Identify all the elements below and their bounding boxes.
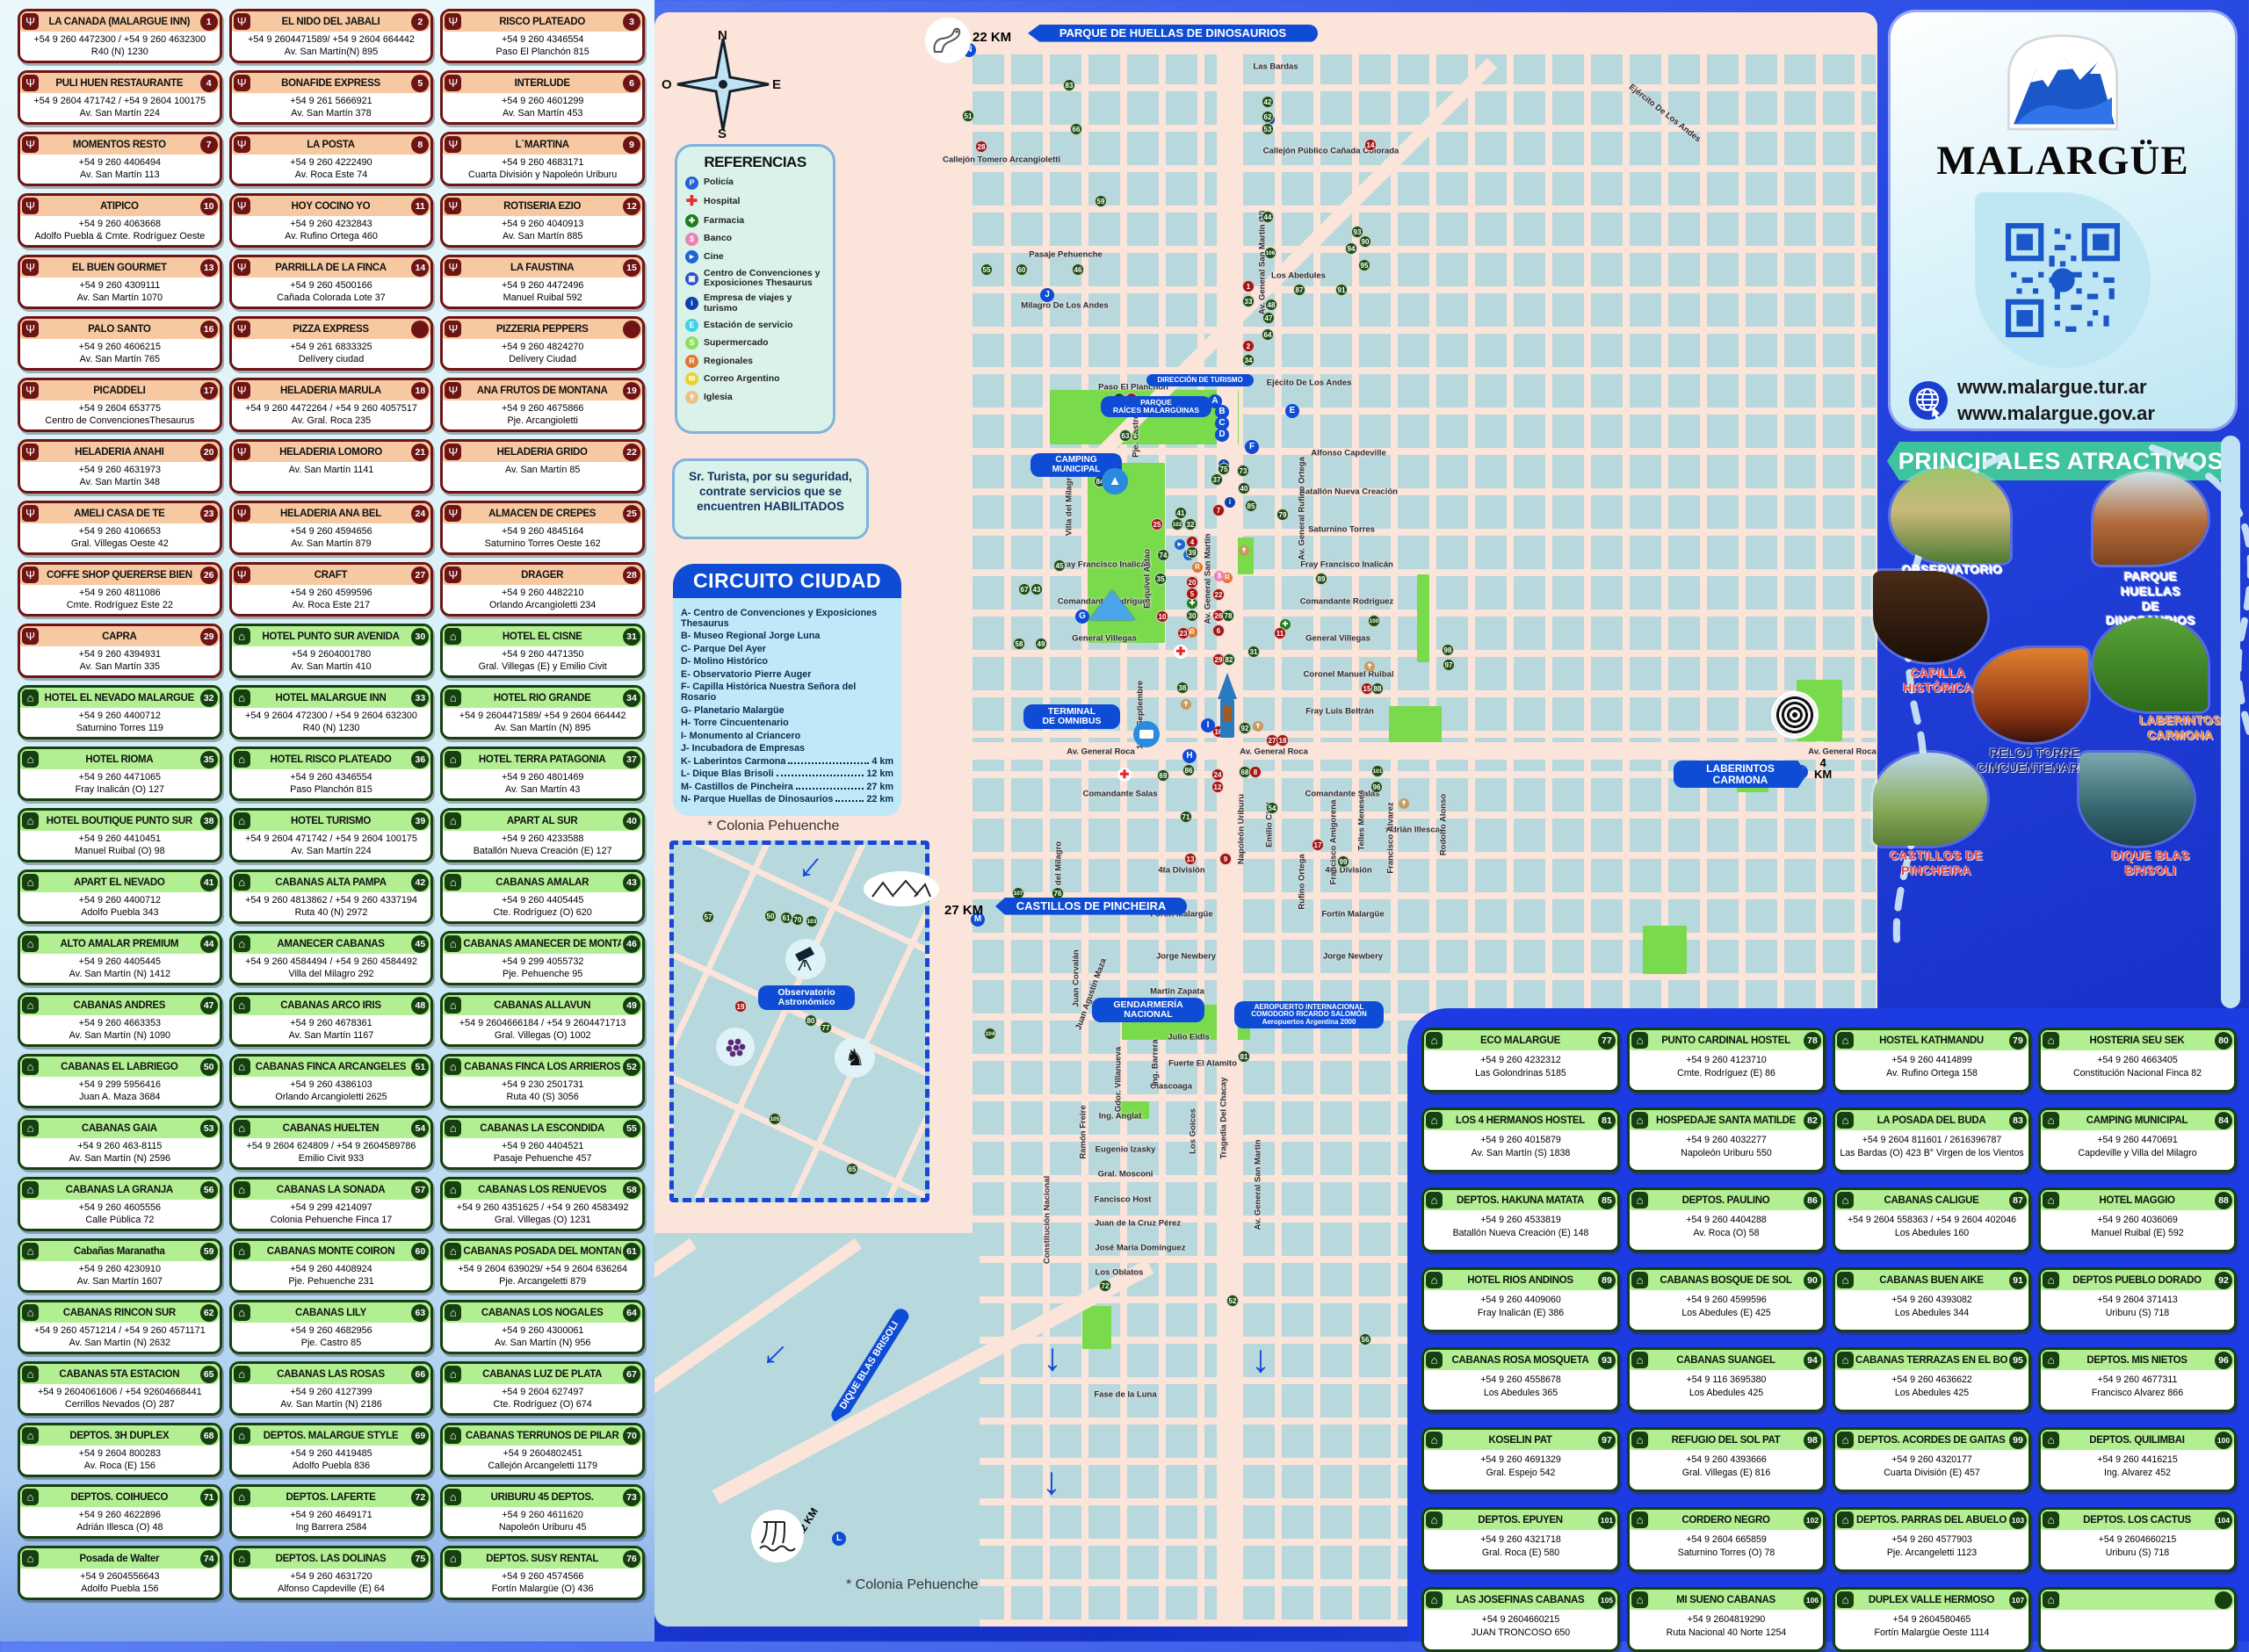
website-tur[interactable]: www.malargue.tur.ar [1957,374,2155,400]
business-card-78: ⌂PUNTO CARDINAL HOSTEL78+54 9 260 412371… [1627,1028,1826,1093]
business-name: DEPTOS. PAULINO [1650,1195,1802,1206]
business-phone: +54 9 260 4400712 [20,894,220,906]
business-name: CABAÑAS LOS RENUEVOS [463,1185,621,1195]
business-address: Pje. Pehuenche 95 [443,968,642,980]
bed-icon: ⌂ [1837,1272,1854,1288]
business-phone: +54 9 260 4410451 [20,833,220,845]
business-address: Los Abedules 365 [1424,1387,1617,1400]
business-card-27: ΨCRAFT27+54 9 260 4599596Av. Roca Este 2… [229,562,434,617]
business-phone: +54 9 2604 811601 / 2616396787 [1835,1134,2028,1147]
fork-knife-icon: Ψ [22,321,39,337]
business-card-99: ⌂DEPTOS. ACORDES DE GAITAS99+54 9 260 43… [1833,1427,2031,1492]
gendarmeria-badge: GENDARMERÍA NACIONAL [1092,998,1204,1022]
business-number-badge: 82 [1804,1112,1821,1129]
business-card-86: ⌂DEPTOS. PAULINO86+54 9 260 4404288Av. R… [1627,1187,1826,1252]
business-name: DEPTOS. ACORDES DE GAITAS [1855,1435,2007,1446]
street-label: Comandante Rodríguez [1300,597,1394,607]
business-address: R40 (N) 1230 [232,722,431,734]
map-marker-8: 8 [1249,766,1262,778]
business-number-badge: 27 [411,566,429,584]
fork-knife-icon: Ψ [234,75,250,91]
business-address: Capdeville y Villa del Milagro [2041,1147,2234,1160]
park-area [1417,574,1429,662]
references-legend: REFERENCIAS PPolicía✚Hospital✚Farmacia$B… [675,144,835,434]
bed-icon: ⌂ [22,997,39,1014]
business-number-badge: 5 [411,75,429,92]
business-phone: +54 9 260 4594656 [232,525,431,537]
business-number-badge: 86 [1804,1192,1821,1209]
map-marker-62: 62 [1262,111,1274,123]
business-number-badge: 6 [623,75,640,92]
map-marker-35: 35 [1154,573,1167,585]
map-marker-52: 52 [1226,1295,1239,1307]
business-address: Cuarta División y Napoleón Uriburu [443,169,642,181]
business-phone: +54 9 2604802451 [443,1447,642,1460]
legend-icon: $ [685,233,698,246]
bed-icon: ⌂ [1837,1352,1854,1368]
bed-icon: ⌂ [1837,1192,1854,1208]
map-marker-64: 64 [1262,328,1274,341]
bed-icon: ⌂ [234,1243,250,1259]
map-marker-60: 60 [1016,263,1028,276]
business-address: Orlando Arcangioletti 2625 [232,1091,431,1103]
map-marker-40: 40 [1238,482,1250,494]
business-name: LOS 4 HERMANOS HOSTEL [1444,1115,1596,1126]
map-marker-106: 106 [1264,247,1276,259]
bottom-card-grid: ⌂ECO MALARGÜE77+54 9 260 4232312Las Golo… [1421,1028,2237,1652]
business-address: Napoleón Uriburu 45 [443,1521,642,1533]
street-label: Constitución Nacional [1043,1176,1052,1264]
business-phone: +54 9 260 4622896 [20,1509,220,1521]
business-card-15: ΨLA FAUSTINA15+54 9 260 4472496Manuel Ru… [440,255,645,309]
attraction-photo [2079,753,2194,846]
business-address: Colonia Pehuenche Finca 17 [232,1214,431,1226]
business-name: CABAÑAS BUEN AIKE [1855,1275,2007,1286]
poi-icon: ✝ [1253,721,1263,732]
business-phone: +54 9 260 4682956 [232,1324,431,1337]
street-label: Av. General Roca [1240,747,1308,757]
fork-knife-icon: Ψ [22,259,39,276]
business-number-badge: 95 [2009,1352,2027,1369]
business-address: Av. San Martín 1070 [20,292,220,304]
compass-star [670,32,776,137]
legend-icon: ✝ [685,391,698,404]
business-phone: +54 9 260 4409060 [1424,1294,1617,1307]
business-address: Batallón Nueva Creación (E) 148 [1424,1227,1617,1240]
business-number-badge: 92 [2215,1272,2232,1289]
bed-icon: ⌂ [22,1120,39,1136]
bed-icon: ⌂ [2043,1352,2059,1368]
business-phone: +54 9 260 4683171 [443,156,642,169]
business-name: DEPTOS. SUSY RENTAL [463,1554,621,1564]
business-card-94: ⌂CABAÑAS SUANGEL94+54 9 116 3695380Los A… [1627,1347,1826,1412]
business-name: CABAÑAS LA ESCONDIDA [463,1123,621,1134]
business-number-badge: 24 [411,505,429,523]
business-number-badge: 45 [411,935,429,953]
business-name: HELADERÍA LOMORO [252,447,410,458]
business-card-26: ΨCOFFE SHOP QUERERSE BIEN26+54 9 260 481… [18,562,222,617]
business-card-40: ⌂APART AL SUR40+54 9 260 4233588Batallón… [440,808,645,862]
street-label: Ramón Freire [1079,1105,1088,1158]
map-marker-19: 19 [734,1000,747,1013]
fork-knife-icon: Ψ [234,13,250,30]
business-phone: +54 9 2604 653775 [20,402,220,415]
business-card-98: ⌂REFUGIO DEL SOL PAT98+54 9 260 4393666G… [1627,1427,1826,1492]
business-number-badge [411,321,429,338]
business-name: PARRILLA DE LA FINCA [252,263,410,273]
mountain-logo [2001,28,2124,132]
hospital-icon: ✚ [1117,768,1132,782]
bed-icon: ⌂ [1426,1272,1443,1288]
business-number-badge: 48 [411,997,429,1014]
business-number-badge: 53 [200,1120,218,1137]
bed-icon: ⌂ [2043,1192,2059,1208]
business-name: Cabañas Maranatha [40,1246,199,1257]
business-address: Av. San Martín 453 [443,107,642,119]
business-card-33: ⌂HOTEL MALARGÜE INN33+54 9 2604 472300 /… [229,685,434,739]
business-number-badge: 41 [200,874,218,891]
map-marker-48: 48 [1265,299,1277,311]
business-card-11: ΨHOY COCINO YO11+54 9 260 4232843Av. Ruf… [229,193,434,248]
business-phone: +54 9 260 463-8115 [20,1140,220,1152]
bottom-lodging-panel: ⌂ECO MALARGÜE77+54 9 260 4232312Las Golo… [1407,1008,2249,1641]
poi-icon: ✝ [1364,661,1375,672]
bed-icon: ⌂ [445,874,461,891]
business-name: CAPRA [40,631,199,642]
business-address: Av. San Martín 335 [20,660,220,673]
business-name: URIBURU 45 DEPTOS. [463,1492,621,1503]
map-marker-83: 83 [1063,79,1075,91]
poi-letter-L: L [832,1532,846,1546]
business-name: REFUGIO DEL SOL PAT [1650,1435,1802,1446]
telescope-icon [785,939,826,979]
map-marker-24: 24 [1211,768,1224,781]
circuito-title: CIRCUITO CIUDAD [673,564,901,598]
bed-icon: ⌂ [234,751,250,768]
business-number-badge: 103 [2009,1511,2027,1529]
business-card-100: ⌂DEPTOS. QUILIMBAI100+54 9 260 4416215In… [2038,1427,2237,1492]
business-card-29: ΨCAPRA29+54 9 260 4394931Av. San Martín … [18,624,222,678]
business-phone: +54 9 260 4036069 [2041,1214,2234,1227]
map-marker-104: 104 [984,1028,996,1040]
legend-item: ▣Centro de Convenciones y Exposiciones T… [685,269,825,289]
business-phone: +54 9 2604 471742 / +54 9 2604 100175 [20,95,220,107]
bed-icon: ⌂ [1837,1591,1854,1608]
bed-icon: ⌂ [22,1243,39,1259]
attraction-photo [1873,571,1987,662]
map-marker-95: 95 [1358,259,1370,271]
business-address: Constitución Nacional Finca 82 [2041,1067,2234,1080]
business-number-badge: 34 [623,689,640,707]
bed-icon: ⌂ [1426,1192,1443,1208]
compass-s: S [718,126,727,141]
business-phone: +54 9 260 4404288 [1630,1214,1823,1227]
business-address: Fray Inalicán (O) 127 [20,783,220,796]
business-number-badge: 87 [2009,1192,2027,1209]
bed-icon: ⌂ [22,1181,39,1198]
business-number-badge: 11 [411,198,429,215]
business-number-badge: 3 [623,13,640,31]
street-label: Fortín Malargüe [1321,910,1384,920]
business-number-badge: 33 [411,689,429,707]
business-address: Av. San Martín 1607 [20,1275,220,1288]
map-marker-41: 41 [1175,507,1187,519]
business-card-104: ⌂DEPTOS. LOS CACTUS104+54 9 2604660215Ur… [2038,1507,2237,1572]
business-name: ATÍPICO [40,201,199,212]
attraction-label: RELOJ TORRE CINCUENTENARIO [1978,746,2093,776]
poi-letter-J: J [1040,288,1054,302]
business-card-8: ΨLA POSTA8+54 9 260 4222490Av. Roca Este… [229,132,434,186]
map-marker-92: 92 [1239,722,1251,734]
business-name: CABAÑAS TERRUÑOS DE PILAR [463,1431,621,1441]
bed-icon: ⌂ [234,628,250,645]
map-marker-55: 55 [980,263,993,276]
business-name: LA POSTA [252,140,410,150]
business-phone: +54 9 260 4320177 [1835,1454,2028,1467]
globe-icon [1908,380,1949,421]
business-address: Gral. Villegas (E) y Emilio Civit [443,660,642,673]
business-name: INTERLUDE [463,78,621,89]
business-card-16: ΨPALO SANTO16+54 9 260 4606215Av. San Ma… [18,316,222,371]
business-phone: +54 9 260 4571214 / +54 9 260 4571171 [20,1324,220,1337]
left-directory-card-grid: ΨLA CAÑADA (MALARGÜE INN)1+54 9 260 4472… [18,9,645,1600]
compass-n: N [718,28,727,43]
map-marker-88: 88 [1371,682,1384,695]
business-name: CABAÑAS ARCO IRIS [252,1000,410,1011]
business-card-36: ⌂HOTEL RISCO PLATEADO36+54 9 260 4346554… [229,747,434,801]
business-address: Centro de ConvencionesThesaurus [20,415,220,427]
business-number-badge: 91 [2009,1272,2027,1289]
business-phone: +54 9 260 4675866 [443,402,642,415]
business-phone: +54 9 260 4405445 [20,956,220,968]
map-marker-71: 71 [1180,811,1192,823]
business-phone: +54 9 260 4106653 [20,525,220,537]
business-name: CABAÑAS SUANGEL [1650,1355,1802,1366]
business-address: Gral. Villegas (E) 816 [1630,1467,1823,1480]
street-label: Coronel Manuel Ruibal [1304,670,1394,680]
qr-code-panel [1975,192,2151,368]
fork-knife-icon: Ψ [22,566,39,583]
business-phone: +54 9 2604580465 [1835,1613,2028,1627]
business-number-badge: 81 [1598,1112,1616,1129]
business-name: HOTEL TERRA PATAGONIA [463,754,621,765]
fork-knife-icon: Ψ [22,198,39,214]
map-marker-7: 7 [1212,504,1225,516]
street-label: Juan de la Cruz Pérez [1095,1219,1181,1229]
dinosaur-icon [925,18,971,63]
legend-item: ✚Farmacia [685,214,825,227]
bed-icon: ⌂ [445,751,461,768]
street-label: Los Abedules [1271,271,1326,281]
business-address: Ruta Nacional 40 Norte 1254 [1630,1627,1823,1640]
map-marker-90: 90 [1359,235,1371,248]
bed-icon: ⌂ [22,1058,39,1075]
business-number-badge: 28 [623,566,640,584]
bed-icon: ⌂ [1631,1192,1648,1208]
business-phone: +54 9 260 4300061 [443,1324,642,1337]
business-number-badge: 98 [1804,1432,1821,1449]
fork-knife-icon: Ψ [234,566,250,583]
business-address: Pje. Pehuenche 231 [232,1275,431,1288]
business-address: JUAN TRONCOSO 650 [1424,1627,1617,1640]
business-number-badge: 9 [623,136,640,154]
business-name: LA CAÑADA (MALARGÜE INN) [40,17,199,27]
business-card-83: ⌂LA POSADA DEL BUDA83+54 9 2604 811601 /… [1833,1107,2031,1172]
business-number-badge: 94 [1804,1352,1821,1369]
business-phone: +54 9 260 4346554 [232,771,431,783]
bus-icon [1133,721,1160,747]
circuito-item: F- Capilla Histórica Nuestra Señora del … [681,682,893,703]
business-name: PICADDELI [40,386,199,396]
legend-item: EEstación de servicio [685,319,825,332]
business-card-61: ⌂CABAÑAS POSADA DEL MONTAÑÉS61+54 9 2604… [440,1238,645,1293]
business-name: APART EL NEVADO [40,877,199,888]
business-number-badge: 31 [623,628,640,646]
business-card-82: ⌂HOSPEDAJE SANTA MATILDE82+54 9 260 4032… [1627,1107,1826,1172]
map-marker-1: 1 [1242,280,1255,292]
business-name: CABAÑAS MONTE COIRÓN [252,1246,410,1257]
business-address: Av. San Martín (N) 1090 [20,1029,220,1042]
street-label: General Villegas [1305,634,1370,644]
street-label: Callejón Público Cañada Colorada [1263,147,1399,156]
street-label: Fray Francisco Inalicán [1058,560,1151,570]
business-number-badge: 89 [1598,1272,1616,1289]
map-marker-18: 18 [1276,734,1289,747]
business-number-badge: 76 [623,1550,640,1568]
bed-icon: ⌂ [234,1120,250,1136]
business-phone: +54 9 2604 627497 [443,1386,642,1398]
business-phone: +54 9 260 4599596 [1630,1294,1823,1307]
bed-icon: ⌂ [2043,1032,2059,1049]
map-marker-42: 42 [1262,96,1274,108]
business-phone: +54 9 260 4346554 [443,33,642,46]
map-marker-5: 5 [1186,588,1198,600]
map-marker-10: 10 [1156,610,1168,623]
bed-icon: ⌂ [1426,1432,1443,1448]
bed-icon: ⌂ [1837,1432,1854,1448]
business-phone: +54 9 260 4222490 [232,156,431,169]
business-card-6: ΨINTERLUDE6+54 9 260 4601299Av. San Mart… [440,70,645,125]
fork-knife-icon: Ψ [445,505,461,522]
business-card-92: ⌂DEPTOS PUEBLO DORADO92+54 9 2604 371413… [2038,1267,2237,1332]
business-name: DEPTOS. LOS CACTUS [2061,1515,2213,1526]
business-number-badge: 105 [1598,1591,1616,1609]
business-number-badge: 44 [200,935,218,953]
business-number-badge: 29 [200,628,218,646]
business-number-badge: 21 [411,444,429,461]
business-name: MOMENTOS RESTO [40,140,199,150]
business-name: LA POSADA DEL BUDA [1855,1115,2007,1126]
business-number-badge: 40 [623,812,640,830]
business-card: ΨPIZZA EXPRESS+54 9 261 6833325Delívery … [229,316,434,371]
street-label: Francisco Amigorena [1329,800,1339,885]
business-address: Cmte. Rodríguez (E) 86 [1630,1067,1823,1080]
business-card-107: ⌂DUPLEX VALLE HERMOSO107+54 9 2604580465… [1833,1587,2031,1652]
legend-item: iEmpresa de viajes y turismo [685,293,825,314]
business-address: Pje. Arcangeletti 1123 [1835,1547,2028,1560]
poi-letter-H: H [1182,749,1197,763]
business-name: CABAÑAS TERRAZAS EN EL BOSQUE [1855,1355,2007,1366]
map-marker-50: 50 [764,910,777,922]
compass-o: O [662,77,672,92]
business-address: Delívery ciudad [232,353,431,365]
street-label: Los Oblatos [1096,1268,1144,1278]
business-name: LA FAUSTINA [463,263,621,273]
map-marker-82: 82 [1223,653,1235,666]
business-number-badge: 2 [411,13,429,31]
business-name: DEPTOS. COIHUECO [40,1492,199,1503]
business-name: DEPTOS. PARRAS DEL ABUELO [1855,1515,2007,1526]
aeropuerto-badge: AEROPUERTO INTERNACIONAL COMODORO RICARD… [1234,1001,1384,1028]
business-number-badge: 57 [411,1181,429,1199]
bed-icon: ⌂ [1426,1511,1443,1528]
bed-icon: ⌂ [1837,1032,1854,1049]
legend-icon: E [685,319,698,332]
business-number-badge: 70 [623,1427,640,1445]
business-phone: +54 9 260 4678361 [232,1017,431,1029]
business-address: Adolfo Puebla 343 [20,906,220,919]
bed-icon: ⌂ [2043,1432,2059,1448]
fork-knife-icon: Ψ [22,444,39,460]
bed-icon: ⌂ [1426,1591,1443,1608]
map-marker-89: 89 [1315,573,1327,585]
business-name: CABAÑAS AMALAR [463,877,621,888]
bed-icon: ⌂ [445,689,461,706]
fork-knife-icon: Ψ [22,75,39,91]
business-address: Uriburu (S) 718 [2041,1547,2234,1560]
business-name: HOTEL TURISMO [252,816,410,826]
circuito-item: K- Laberintos Carmona4 km [681,756,893,767]
business-address: Cañada Colorada Lote 37 [232,292,431,304]
business-phone: +54 9 2604660215 [2041,1533,2234,1547]
business-number-badge: 52 [623,1058,640,1076]
bed-icon: ⌂ [445,1427,461,1444]
business-card-53: ⌂CABAÑAS GAIA53+54 9 260 463-8115Av. San… [18,1115,222,1170]
business-name: CABAÑAS ANDRES [40,1000,199,1011]
laberintos-banner: LABERINTOS CARMONA [1674,761,1807,788]
business-address: Av. San Martín (N) 895 [443,722,642,734]
business-card-7: ΨMOMENTOS RESTO7+54 9 260 4406494Av. San… [18,132,222,186]
street-label: Av. General San Martín [1204,534,1213,624]
map-marker-31: 31 [1247,646,1260,658]
business-phone: +54 9 260 4606215 [20,341,220,353]
map-marker-85: 85 [1245,500,1257,512]
business-number-badge: 55 [623,1120,640,1137]
business-number-badge: 73 [623,1489,640,1506]
business-address: Av. Roca Este 217 [232,599,431,611]
business-number-badge: 80 [2215,1032,2232,1050]
business-phone: +54 9 116 3695380 [1630,1374,1823,1387]
legend-icon: P [685,177,698,190]
business-number-badge: 72 [411,1489,429,1506]
map-marker-12: 12 [1211,781,1224,793]
business-name: CABAÑAS ALTA PAMPA [252,877,410,888]
business-name: DUPLEX VALLE HERMOSO [1855,1595,2007,1605]
business-number-badge: 23 [200,505,218,523]
business-address: Los Abedules 425 [1835,1387,2028,1400]
street-label: Av. General Rufino Ortega [1298,457,1307,560]
business-card-54: ⌂CABAÑAS HUELTÉN54+54 9 2604 624809 / +5… [229,1115,434,1170]
business-number-badge: 13 [200,259,218,277]
legend-icon: ✚ [685,214,698,227]
park-area [1082,1306,1111,1349]
business-phone: +54 9 260 4416215 [2041,1454,2234,1467]
street-label: Alfonso Capdeville [1311,449,1386,458]
website-gov[interactable]: www.malargue.gov.ar [1957,400,2155,427]
business-number-badge: 47 [200,997,218,1014]
business-card-101: ⌂DEPTOS. EPUYEN101+54 9 260 4321718Gral.… [1421,1507,1620,1572]
business-card-76: ⌂DEPTOS. SUSY RENTAL76+54 9 260 4574566F… [440,1546,645,1600]
